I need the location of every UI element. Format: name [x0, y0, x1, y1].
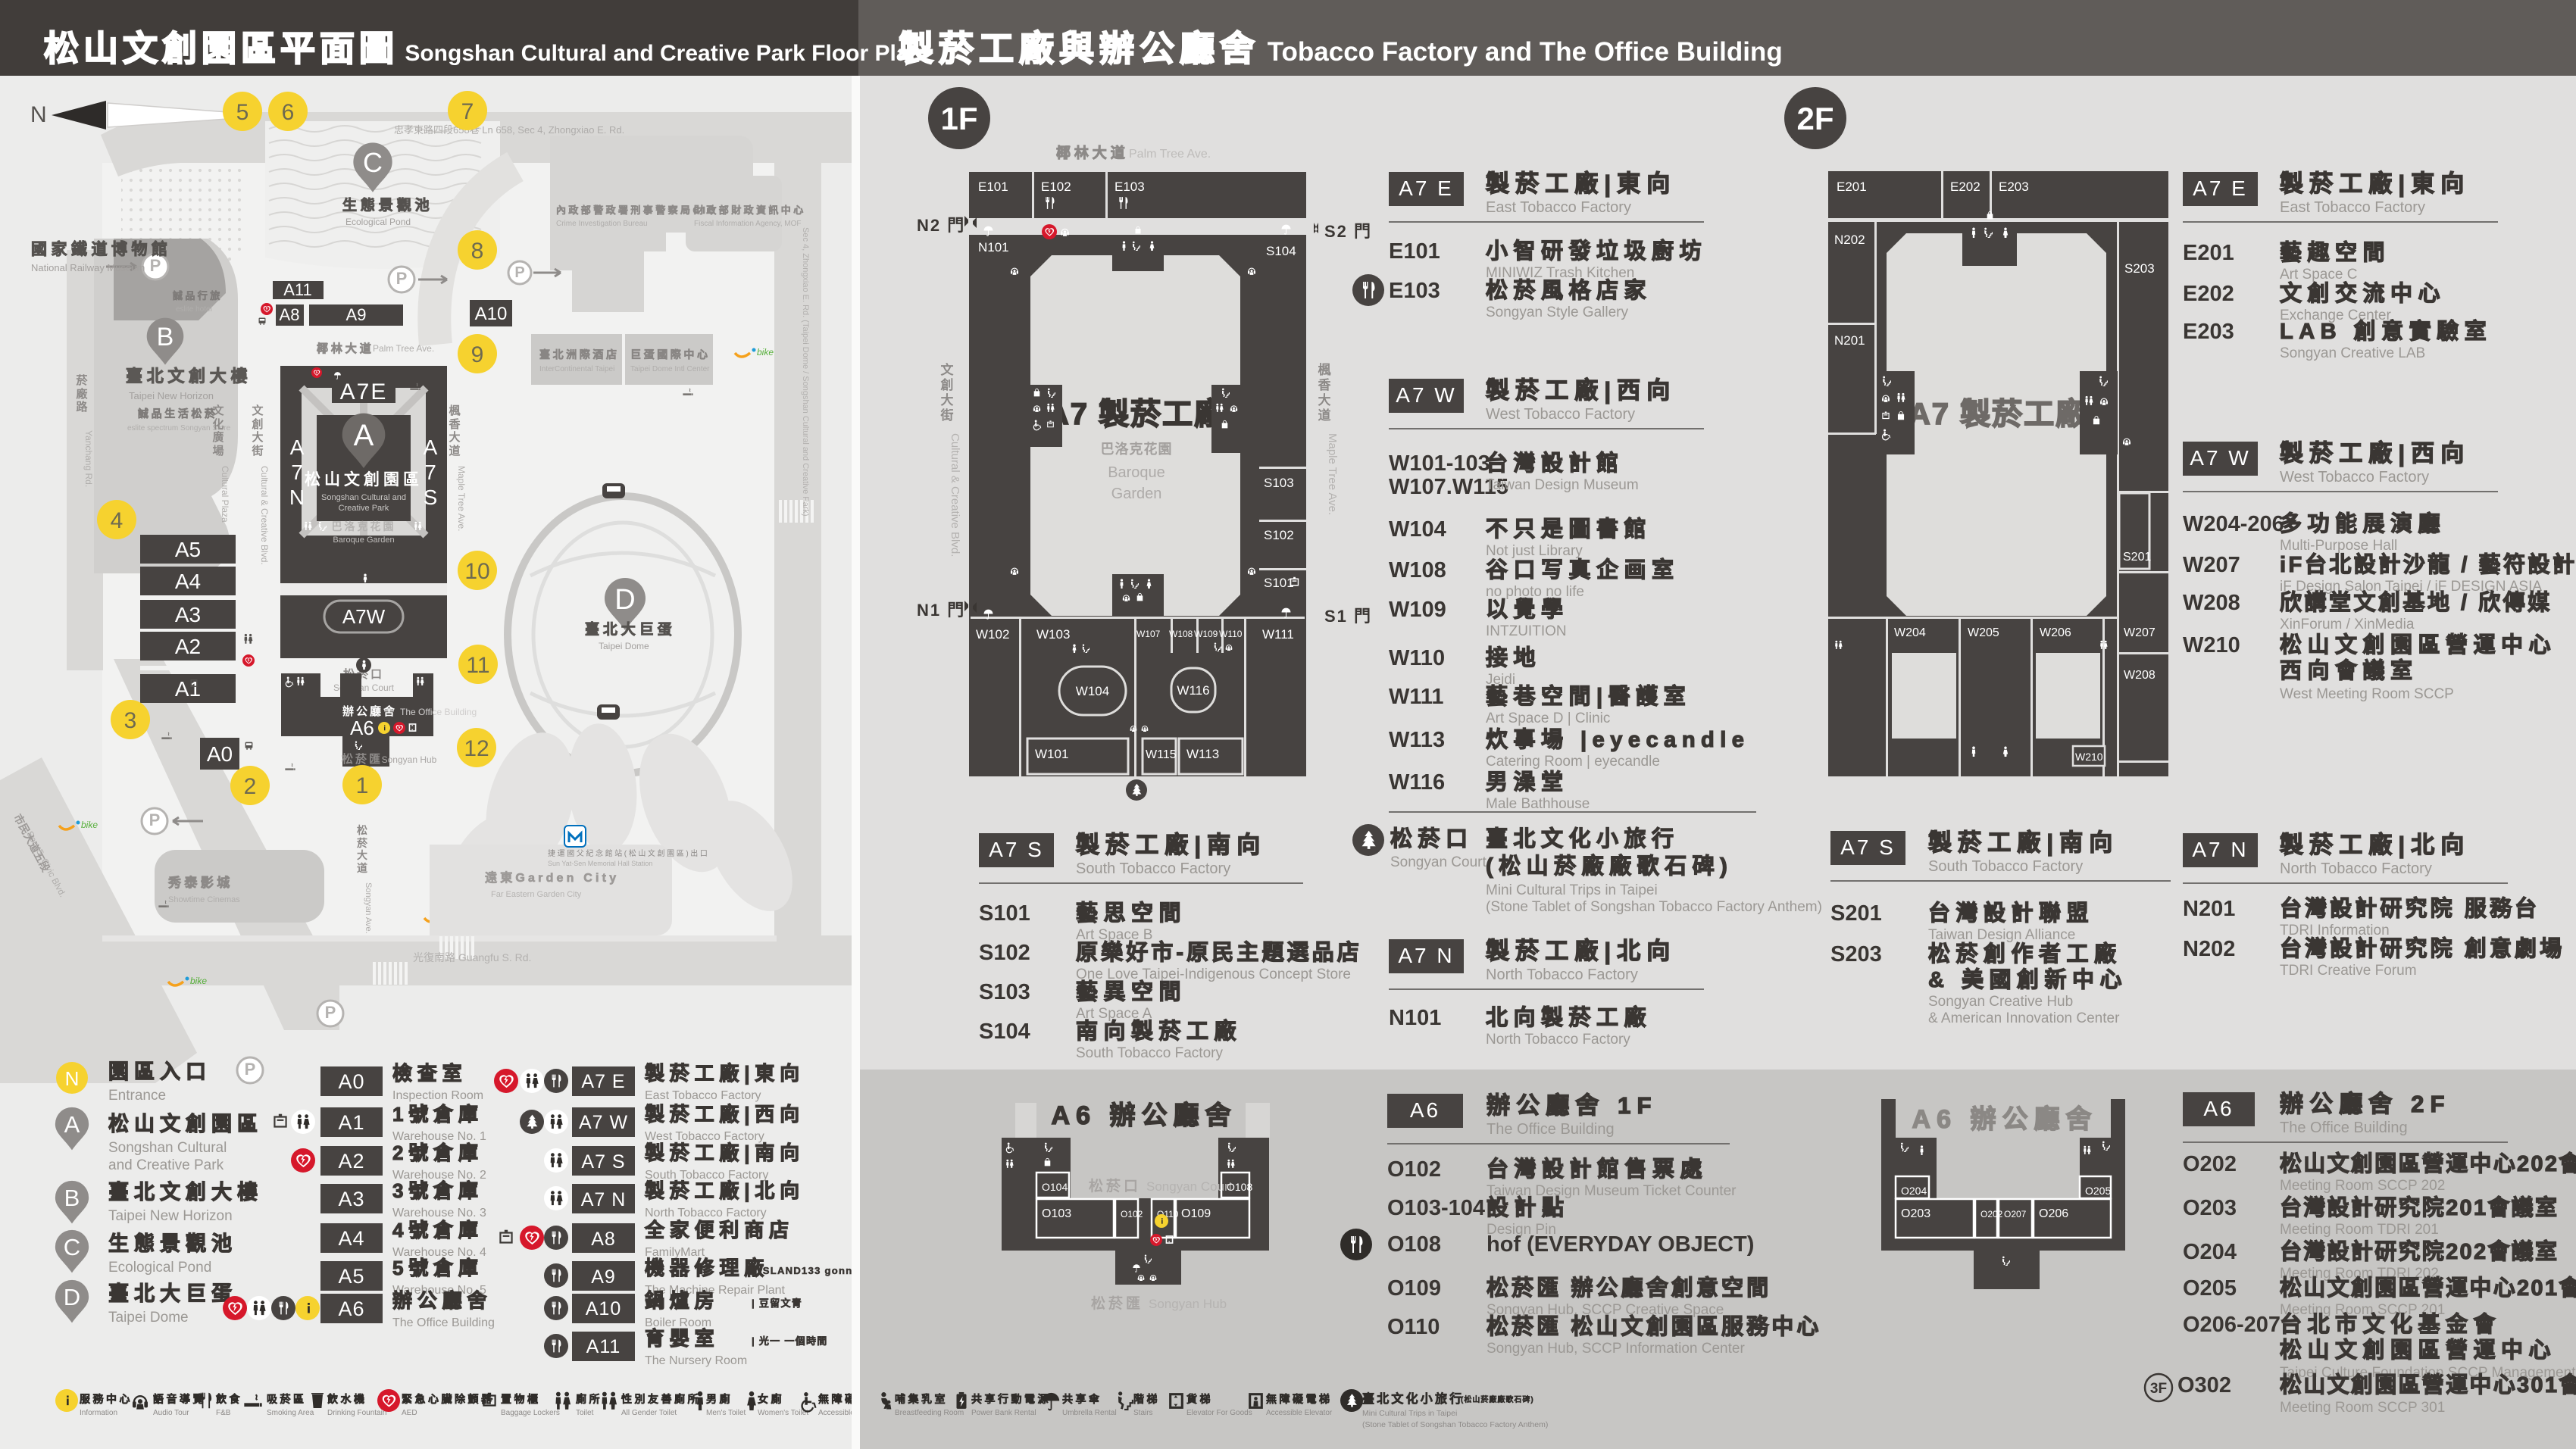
- svg-text:bike: bike: [81, 820, 98, 830]
- svg-text:化: 化: [212, 417, 224, 431]
- svg-text:1: 1: [356, 773, 369, 798]
- svg-text:A11: A11: [283, 280, 312, 299]
- svg-text:Men's Toilet: Men's Toilet: [706, 1409, 746, 1417]
- svg-text:W108: W108: [1169, 629, 1193, 639]
- svg-text:7: 7: [291, 461, 303, 484]
- svg-text:S1 門: S1 門: [1324, 607, 1372, 626]
- svg-text:A7 製菸工廠: A7 製菸工廠: [1047, 397, 1226, 431]
- svg-text:W101: W101: [1035, 747, 1068, 761]
- svg-text:街: 街: [940, 408, 954, 423]
- svg-text:設計點: 設計點: [1487, 1194, 1570, 1220]
- svg-text:South Tobacco Factory: South Tobacco Factory: [1928, 858, 2083, 875]
- svg-text:The Nursery Room: The Nursery Room: [645, 1354, 747, 1367]
- svg-text:11: 11: [466, 653, 489, 678]
- svg-text:O204: O204: [1901, 1185, 1927, 1197]
- svg-text:園區入口: 園區入口: [108, 1060, 211, 1083]
- svg-text:B: B: [157, 323, 174, 351]
- svg-text:Taipei Dome: Taipei Dome: [599, 641, 649, 651]
- svg-text:W110: W110: [1219, 629, 1243, 639]
- svg-text:S203: S203: [1830, 942, 1882, 967]
- svg-text:The Office Building: The Office Building: [392, 1316, 495, 1329]
- svg-text:台灣設計館售票處: 台灣設計館售票處: [1487, 1156, 1708, 1182]
- svg-text:S: S: [424, 486, 438, 509]
- svg-text:鍋爐房: 鍋爐房: [645, 1289, 719, 1312]
- svg-text:5: 5: [236, 100, 249, 125]
- svg-text:4: 4: [111, 508, 123, 533]
- svg-text:Mini Cultural Trips in Taipei: Mini Cultural Trips in Taipei: [1486, 882, 1658, 898]
- svg-text:6: 6: [282, 100, 295, 125]
- svg-text:台灣設計研究院202會議室: 台灣設計研究院202會議室: [2280, 1238, 2559, 1264]
- svg-text:W205: W205: [1968, 626, 1999, 639]
- svg-text:台灣設計研究院 創意劇場: 台灣設計研究院 創意劇場: [2280, 935, 2565, 961]
- svg-text:1號倉庫: 1號倉庫: [392, 1103, 483, 1126]
- svg-text:松菸匯: 松菸匯: [342, 752, 383, 766]
- svg-text:B: B: [64, 1185, 80, 1211]
- svg-text:臺北文化小旅行: 臺北文化小旅行: [1362, 1391, 1464, 1406]
- svg-text:N101: N101: [1389, 1006, 1441, 1030]
- svg-text:Palm Tree Ave.: Palm Tree Ave.: [373, 343, 434, 354]
- svg-text:A2: A2: [338, 1150, 364, 1173]
- svg-text:E103: E103: [1389, 279, 1440, 303]
- svg-text:W208: W208: [2124, 669, 2156, 682]
- svg-text:A7 N: A7 N: [2192, 838, 2248, 861]
- svg-text:E103: E103: [1114, 180, 1145, 194]
- svg-text:A7 N: A7 N: [581, 1189, 627, 1210]
- svg-text:Entrance: Entrance: [108, 1088, 166, 1104]
- svg-text:& 美國創新中心: & 美國創新中心: [1928, 967, 2127, 992]
- svg-text:Far Eastern Garden City: Far Eastern Garden City: [491, 890, 582, 899]
- svg-text:谷口写真企画室: 谷口写真企画室: [1486, 557, 1680, 582]
- svg-text:Meeting Room SCCP 202: Meeting Room SCCP 202: [2280, 1178, 2445, 1194]
- svg-text:N: N: [65, 1067, 80, 1090]
- svg-text:A7 E: A7 E: [581, 1071, 625, 1092]
- svg-text:4號倉庫: 4號倉庫: [392, 1219, 483, 1241]
- svg-text:North Tobacco Factory: North Tobacco Factory: [2280, 860, 2432, 877]
- svg-text:| 豆留文青: | 豆留文青: [752, 1298, 802, 1309]
- svg-text:Taipei Dome Intl Center: Taipei Dome Intl Center: [630, 365, 710, 373]
- svg-text:S201: S201: [1830, 901, 1882, 926]
- svg-text:Inspection Room: Inspection Room: [392, 1089, 483, 1102]
- svg-text:P: P: [150, 256, 161, 275]
- svg-text:S201: S201: [2123, 551, 2151, 564]
- svg-text:S103: S103: [979, 980, 1030, 1004]
- svg-text:製菸工廠|北向: 製菸工廠|北向: [1486, 938, 1676, 964]
- svg-text:W116: W116: [1389, 770, 1445, 795]
- svg-text:Maple Tree Ave.: Maple Tree Ave.: [456, 466, 467, 532]
- svg-text:5號倉庫: 5號倉庫: [392, 1257, 483, 1279]
- svg-text:製菸工廠|西向: 製菸工廠|西向: [1486, 377, 1676, 404]
- svg-text:楓: 楓: [449, 404, 461, 417]
- svg-text:O203: O203: [2183, 1196, 2237, 1220]
- svg-text:9: 9: [471, 342, 484, 367]
- svg-text:P: P: [396, 269, 408, 288]
- svg-text:製菸工廠|南向: 製菸工廠|南向: [1928, 829, 2118, 856]
- svg-text:2: 2: [244, 774, 257, 799]
- svg-text:Garden: Garden: [1111, 486, 1162, 502]
- svg-text:A: A: [290, 436, 305, 459]
- svg-text:廁所: 廁所: [576, 1393, 602, 1405]
- svg-text:貨梯: 貨梯: [1186, 1393, 1213, 1405]
- svg-text:檢查室: 檢查室: [392, 1062, 467, 1085]
- svg-text:A0: A0: [338, 1070, 364, 1093]
- svg-text:A7 E: A7 E: [2193, 176, 2248, 200]
- svg-text:The Office Building: The Office Building: [2280, 1120, 2408, 1136]
- svg-text:女廁: 女廁: [758, 1393, 784, 1405]
- svg-text:South Tobacco Factory: South Tobacco Factory: [1076, 1045, 1223, 1061]
- svg-text:Palm Tree Ave.: Palm Tree Ave.: [1129, 148, 1211, 161]
- svg-text:P: P: [325, 1003, 336, 1022]
- svg-text:N201: N201: [1834, 333, 1865, 348]
- svg-text:O203: O203: [1901, 1207, 1930, 1220]
- svg-text:台灣設計聯盟: 台灣設計聯盟: [1928, 900, 2094, 926]
- svg-text:S104: S104: [979, 1020, 1030, 1044]
- svg-text:生態景觀池: 生態景觀池: [108, 1232, 237, 1255]
- svg-text:香: 香: [449, 417, 460, 431]
- svg-text:Umbrella Rental: Umbrella Rental: [1062, 1409, 1117, 1417]
- svg-text:菸: 菸: [357, 837, 368, 849]
- svg-text:W204-206: W204-206: [2183, 512, 2284, 536]
- svg-text:A6 辦公廳舍: A6 辦公廳舍: [1052, 1101, 1237, 1130]
- svg-text:臺北文創大樓: 臺北文創大樓: [108, 1180, 263, 1204]
- svg-text:A7 W: A7 W: [2190, 446, 2250, 470]
- svg-text:誠品生活松菸: 誠品生活松菸: [138, 408, 218, 420]
- svg-text:財政部財政資訊中心: 財政部財政資訊中心: [693, 205, 806, 216]
- svg-text:A4: A4: [175, 570, 201, 593]
- svg-text:階梯: 階梯: [1133, 1393, 1160, 1405]
- svg-text:Songyan Creative Hub: Songyan Creative Hub: [1928, 994, 2073, 1010]
- svg-text:W101-103: W101-103: [1389, 451, 1490, 476]
- svg-text:Songyan Court: Songyan Court: [1146, 1179, 1233, 1194]
- svg-text:臺北大巨蛋: 臺北大巨蛋: [585, 620, 676, 638]
- svg-text:A5: A5: [338, 1265, 364, 1288]
- svg-text:3號倉庫: 3號倉庫: [392, 1179, 483, 1202]
- svg-text:W207: W207: [2183, 553, 2240, 577]
- svg-text:A7 W: A7 W: [1396, 383, 1456, 407]
- svg-text:N202: N202: [1834, 233, 1865, 247]
- svg-text:街: 街: [251, 444, 263, 457]
- svg-text:(松山菸廠廠歌石碑): (松山菸廠廠歌石碑): [1486, 853, 1733, 879]
- svg-text:3F: 3F: [2150, 1381, 2167, 1397]
- svg-text:W108: W108: [1389, 558, 1446, 582]
- svg-text:道: 道: [449, 444, 460, 457]
- svg-text:Taipei New Horizon: Taipei New Horizon: [108, 1208, 233, 1224]
- svg-text:E201: E201: [1837, 180, 1867, 194]
- svg-text:松山文創園區: 松山文創園區: [305, 470, 423, 489]
- svg-text:語音導覽: 語音導覽: [153, 1393, 206, 1405]
- svg-text:| ISLAND133 gonna': | ISLAND133 gonna': [752, 1265, 860, 1276]
- svg-text:松山文創園區營運中心301會議室: 松山文創園區營運中心301會議室: [2280, 1372, 2576, 1397]
- svg-text:O103-104: O103-104: [1387, 1196, 1485, 1220]
- svg-text:Meeting Room SCCP 301: Meeting Room SCCP 301: [2280, 1400, 2445, 1416]
- svg-text:| 光一 一個時間: | 光一 一個時間: [752, 1335, 828, 1347]
- svg-text:iF台北設計沙龍 / 藝符設計: iF台北設計沙龍 / 藝符設計: [2280, 551, 2576, 577]
- svg-text:創: 創: [940, 377, 954, 392]
- svg-text:O102: O102: [1387, 1157, 1441, 1182]
- svg-text:Maple Tree Ave.: Maple Tree Ave.: [1326, 433, 1339, 515]
- svg-text:製菸工廠|西向: 製菸工廠|西向: [2280, 440, 2470, 467]
- svg-text:椰林大道: 椰林大道: [317, 342, 374, 355]
- svg-text:Songyan Ave.: Songyan Ave.: [364, 882, 373, 934]
- svg-text:A7 S: A7 S: [989, 838, 1044, 861]
- svg-text:O204: O204: [2183, 1240, 2237, 1264]
- svg-text:Creative Park: Creative Park: [339, 504, 389, 513]
- svg-text:S101: S101: [1264, 576, 1294, 590]
- svg-text:A11: A11: [586, 1336, 621, 1357]
- svg-text:香: 香: [1318, 378, 1331, 392]
- svg-text:椰林大道: 椰林大道: [1056, 144, 1129, 161]
- svg-text:Cultural & Creative Blvd.: Cultural & Creative Blvd.: [949, 433, 961, 557]
- svg-text:北向製菸工廠: 北向製菸工廠: [1486, 1004, 1652, 1030]
- svg-text:捷運國父紀念館站(松山文創園區)出口: 捷運國父紀念館站(松山文創園區)出口: [548, 848, 709, 858]
- svg-text:Crime Investigation Bureau: Crime Investigation Bureau: [556, 220, 648, 228]
- svg-text:文: 文: [941, 362, 955, 377]
- svg-text:West Tobacco Factory: West Tobacco Factory: [1486, 406, 1635, 423]
- svg-text:W116: W116: [1177, 683, 1209, 698]
- svg-text:Information: Information: [80, 1409, 117, 1417]
- svg-text:巴洛克花園: 巴洛克花園: [1101, 441, 1173, 457]
- svg-text:Mini Cultural Trips in Taipei: Mini Cultural Trips in Taipei: [1362, 1409, 1457, 1418]
- svg-text:臺北文化小旅行: 臺北文化小旅行: [1486, 826, 1680, 851]
- svg-text:Taipei Dome: Taipei Dome: [108, 1310, 189, 1326]
- svg-text:O206: O206: [2039, 1207, 2068, 1220]
- svg-text:製菸工廠|北向: 製菸工廠|北向: [2280, 832, 2470, 858]
- svg-text:製菸工廠|南向: 製菸工廠|南向: [1076, 832, 1266, 858]
- svg-text:松菸口: 松菸口: [1089, 1177, 1141, 1194]
- svg-text:Meeting Room TDRI 201: Meeting Room TDRI 201: [2280, 1222, 2439, 1238]
- svg-text:Songyan Hub: Songyan Hub: [382, 754, 437, 765]
- svg-text:D: D: [614, 584, 635, 616]
- svg-text:台北市文化基金會: 台北市文化基金會: [2280, 1311, 2501, 1337]
- svg-text:O108: O108: [1227, 1181, 1252, 1193]
- svg-text:E201: E201: [2183, 241, 2234, 265]
- svg-text:eslite hotel: eslite hotel: [176, 305, 212, 314]
- svg-text:S2 門: S2 門: [1324, 222, 1372, 241]
- svg-text:XinForum / XinMedia: XinForum / XinMedia: [2280, 617, 2415, 632]
- svg-text:全家便利商店: 全家便利商店: [644, 1219, 794, 1241]
- svg-text:生態景觀池: 生態景觀池: [342, 196, 433, 214]
- svg-text:松菸口: 松菸口: [1390, 826, 1474, 851]
- svg-text:O206-207: O206-207: [2183, 1313, 2281, 1337]
- svg-text:松菸匯 辦公廳舍創意空間: 松菸匯 辦公廳舍創意空間: [1487, 1275, 1771, 1301]
- svg-text:哺集乳室: 哺集乳室: [895, 1393, 948, 1405]
- svg-text:A: A: [354, 419, 374, 452]
- svg-text:小智研發垃圾廚坊: 小智研發垃圾廚坊: [1486, 238, 1707, 264]
- svg-text:台灣設計研究院 服務台: 台灣設計研究院 服務台: [2280, 895, 2540, 921]
- svg-text:bike: bike: [757, 347, 774, 358]
- svg-text:道: 道: [357, 862, 367, 874]
- svg-text:N: N: [289, 486, 305, 509]
- svg-text:Not just Library: Not just Library: [1486, 543, 1583, 559]
- svg-text:飲食: 飲食: [215, 1393, 242, 1405]
- svg-text:(Stone Tablet of Songshan Toba: (Stone Tablet of Songshan Tobacco Factor…: [1486, 899, 1822, 915]
- svg-text:S102: S102: [1264, 528, 1294, 542]
- svg-text:LAB 創意實驗室: LAB 創意實驗室: [2280, 318, 2492, 344]
- svg-text:辦公廳舍: 辦公廳舍: [392, 1289, 492, 1312]
- svg-text:A3: A3: [175, 603, 201, 626]
- svg-text:松菸匯: 松菸匯: [1091, 1294, 1143, 1312]
- svg-text:1F: 1F: [940, 101, 977, 136]
- svg-text:S101: S101: [979, 901, 1030, 926]
- svg-text:O110: O110: [1387, 1315, 1440, 1339]
- svg-text:W104: W104: [1389, 517, 1446, 542]
- svg-text:A7 製菸工廠: A7 製菸工廠: [1909, 397, 2087, 431]
- svg-text:Songyan Hub, SCCP Information: Songyan Hub, SCCP Information Center: [1487, 1341, 1745, 1357]
- svg-text:2號倉庫: 2號倉庫: [392, 1141, 483, 1164]
- svg-text:TDRI Information: TDRI Information: [2280, 923, 2390, 938]
- svg-text:松山文創園區營運中心202會議室: 松山文創園區營運中心202會議室: [2280, 1151, 2576, 1176]
- svg-text:E101: E101: [978, 180, 1008, 194]
- svg-text:Baroque Garden: Baroque Garden: [333, 536, 394, 545]
- svg-text:Audio Tour: Audio Tour: [153, 1409, 189, 1417]
- svg-text:製菸工廠|東向: 製菸工廠|東向: [645, 1062, 805, 1085]
- svg-text:巨蛋國際中心: 巨蛋國際中心: [630, 348, 711, 361]
- svg-text:North Tobacco Factory: North Tobacco Factory: [1486, 967, 1638, 983]
- svg-text:The Office Building: The Office Building: [1487, 1121, 1615, 1138]
- svg-text:W111: W111: [1262, 627, 1294, 642]
- svg-text:共享傘: 共享傘: [1062, 1393, 1102, 1405]
- svg-text:A9: A9: [346, 305, 367, 324]
- svg-text:Taiwan Design Alliance: Taiwan Design Alliance: [1928, 927, 2075, 943]
- svg-text:Art Space C: Art Space C: [2280, 267, 2357, 283]
- svg-text:道: 道: [1318, 408, 1331, 423]
- svg-text:台灣設計研究院201會議室: 台灣設計研究院201會議室: [2280, 1194, 2559, 1220]
- svg-text:Songshan Cultural: Songshan Cultural: [108, 1140, 227, 1156]
- svg-text:7: 7: [461, 99, 474, 124]
- svg-text:炊事場 |eyecandle: 炊事場 |eyecandle: [1486, 727, 1749, 752]
- svg-text:藝思空間: 藝思空間: [1076, 900, 1186, 926]
- svg-text:Women's Toilet: Women's Toilet: [758, 1409, 808, 1417]
- svg-text:All Gender Toilet: All Gender Toilet: [621, 1409, 677, 1417]
- svg-text:松山文創園區營運中心: 松山文創園區營運中心: [2280, 632, 2556, 657]
- svg-text:松山文創園區營運中心: 松山文創園區營運中心: [2280, 1337, 2556, 1363]
- svg-text:Songyan Style Gallery: Songyan Style Gallery: [1486, 304, 1628, 320]
- svg-text:E102: E102: [1041, 180, 1071, 194]
- svg-text:C: C: [363, 147, 383, 178]
- svg-text:置物櫃: 置物櫃: [501, 1393, 541, 1405]
- svg-text:性別友善廁所: 性別友善廁所: [621, 1393, 701, 1405]
- svg-text:Songyan Hub: Songyan Hub: [1149, 1297, 1227, 1311]
- svg-text:A3: A3: [338, 1188, 364, 1210]
- svg-text:Fiscal Information Agency, MOF: Fiscal Information Agency, MOF: [694, 220, 802, 228]
- svg-text:N202: N202: [2183, 937, 2235, 961]
- svg-text:N2 門: N2 門: [917, 216, 965, 235]
- svg-text:無障礙電梯: 無障礙電梯: [1266, 1393, 1333, 1405]
- svg-text:西向會議室: 西向會議室: [2280, 657, 2418, 683]
- svg-text:N101: N101: [978, 240, 1009, 255]
- svg-text:製菸工廠|西向: 製菸工廠|西向: [645, 1103, 805, 1126]
- svg-text:Male Bathhouse: Male Bathhouse: [1486, 796, 1590, 812]
- svg-text:O202: O202: [2183, 1152, 2237, 1176]
- svg-text:West Meeting Room SCCP: West Meeting Room SCCP: [2280, 686, 2454, 702]
- svg-text:A10: A10: [475, 304, 508, 324]
- svg-text:Toilet: Toilet: [576, 1409, 594, 1417]
- svg-text:S203: S203: [2124, 261, 2155, 276]
- svg-text:East Tobacco Factory: East Tobacco Factory: [2280, 199, 2425, 216]
- svg-text:(松山菸廠廠歌石碑): (松山菸廠廠歌石碑): [1461, 1394, 1534, 1404]
- svg-text:W113: W113: [1186, 747, 1219, 761]
- svg-text:P: P: [149, 810, 161, 829]
- svg-text:光復南路 Guangfu S. Rd.: 光復南路 Guangfu S. Rd.: [413, 951, 531, 963]
- svg-text:hof (EVERYDAY OBJECT): hof (EVERYDAY OBJECT): [1487, 1232, 1754, 1257]
- svg-text:O205: O205: [2085, 1185, 2111, 1197]
- svg-text:A10: A10: [586, 1298, 621, 1319]
- svg-text:E203: E203: [2183, 320, 2234, 344]
- svg-text:服務中心: 服務中心: [80, 1393, 133, 1405]
- svg-text:文創交流中心: 文創交流中心: [2280, 280, 2446, 306]
- svg-text:TDRI Creative Forum: TDRI Creative Forum: [2280, 963, 2417, 979]
- svg-text:E203: E203: [1999, 180, 2029, 194]
- svg-text:W208: W208: [2183, 591, 2240, 615]
- svg-text:國家鐵道博物館: 國家鐵道博物館: [31, 240, 172, 258]
- svg-text:A7 W: A7 W: [579, 1112, 628, 1133]
- svg-text:Sun Yat-Sen Memorial Hall Stat: Sun Yat-Sen Memorial Hall Station: [548, 860, 652, 867]
- svg-text:A6 辦公廳舍: A6 辦公廳舍: [1912, 1104, 2098, 1134]
- svg-text:A6: A6: [2203, 1097, 2234, 1120]
- svg-text:育嬰室: 育嬰室: [645, 1327, 719, 1350]
- svg-text:W104: W104: [1076, 684, 1109, 698]
- svg-text:Ecological Pond: Ecological Pond: [345, 217, 411, 227]
- svg-text:藝巷空間|醫護室: 藝巷空間|醫護室: [1486, 683, 1691, 709]
- svg-text:W204: W204: [1894, 626, 1926, 639]
- svg-text:W210: W210: [2075, 751, 2103, 763]
- svg-text:廠: 廠: [76, 387, 88, 401]
- svg-text:bike: bike: [190, 976, 207, 986]
- svg-text:欣講堂文創基地 / 欣傳媒: 欣講堂文創基地 / 欣傳媒: [2280, 589, 2553, 615]
- svg-text:秀泰影城: 秀泰影城: [167, 875, 233, 890]
- svg-text:W207: W207: [2124, 626, 2156, 639]
- svg-text:A2: A2: [175, 635, 201, 658]
- svg-text:N1 門: N1 門: [917, 601, 965, 620]
- svg-text:A7 N: A7 N: [1398, 944, 1454, 967]
- svg-text:O205: O205: [2183, 1276, 2237, 1301]
- svg-text:E202: E202: [1950, 180, 1980, 194]
- svg-text:Warehouse No. 3: Warehouse No. 3: [392, 1207, 486, 1219]
- svg-text:D: D: [64, 1284, 80, 1310]
- svg-text:創: 創: [251, 417, 263, 431]
- svg-text:飲水機: 飲水機: [327, 1393, 367, 1405]
- svg-text:松山文創園區: 松山文創園區: [108, 1112, 263, 1135]
- svg-text:吸菸區: 吸菸區: [267, 1393, 307, 1405]
- svg-text:A8: A8: [591, 1229, 616, 1250]
- svg-text:A7 S: A7 S: [581, 1151, 625, 1173]
- svg-text:製菸工廠|南向: 製菸工廠|南向: [645, 1141, 805, 1164]
- svg-text:Breastfeeding Room: Breastfeeding Room: [895, 1409, 964, 1417]
- svg-text:East Tobacco Factory: East Tobacco Factory: [1486, 199, 1631, 216]
- svg-text:忠孝東路四段658巷 Ln 658, Sec 4, Zho: 忠孝東路四段658巷 Ln 658, Sec 4, Zhongxiao E. R…: [394, 124, 624, 136]
- svg-text:O207: O207: [2004, 1209, 2027, 1219]
- svg-text:大: 大: [252, 430, 263, 444]
- svg-text:W109: W109: [1389, 598, 1446, 622]
- svg-text:多功能展演廳: 多功能展演廳: [2280, 511, 2446, 536]
- svg-text:National Railway Museum: National Railway Museum: [31, 262, 145, 273]
- svg-text:Elevator For Goods: Elevator For Goods: [1186, 1409, 1252, 1417]
- svg-text:InterContinental Taipei: InterContinental Taipei: [539, 365, 614, 373]
- svg-text:製菸工廠|東向: 製菸工廠|東向: [1486, 170, 1676, 197]
- svg-text:C: C: [64, 1234, 80, 1260]
- svg-text:大: 大: [357, 849, 367, 861]
- svg-text:廣: 廣: [212, 430, 224, 444]
- svg-text:S102: S102: [979, 941, 1030, 965]
- svg-text:Cultural & Creative Blvd.: Cultural & Creative Blvd.: [259, 466, 270, 565]
- svg-text:Power Bank Rental: Power Bank Rental: [971, 1409, 1036, 1417]
- svg-text:A0: A0: [207, 742, 233, 766]
- svg-text:A6: A6: [1410, 1098, 1440, 1122]
- svg-text:A5: A5: [175, 538, 201, 561]
- svg-text:Taiwan Design Museum: Taiwan Design Museum: [1486, 477, 1639, 493]
- svg-text:East Tobacco Factory: East Tobacco Factory: [645, 1089, 761, 1102]
- svg-text:W206: W206: [2040, 626, 2071, 639]
- svg-text:台灣設計館: 台灣設計館: [1486, 450, 1624, 476]
